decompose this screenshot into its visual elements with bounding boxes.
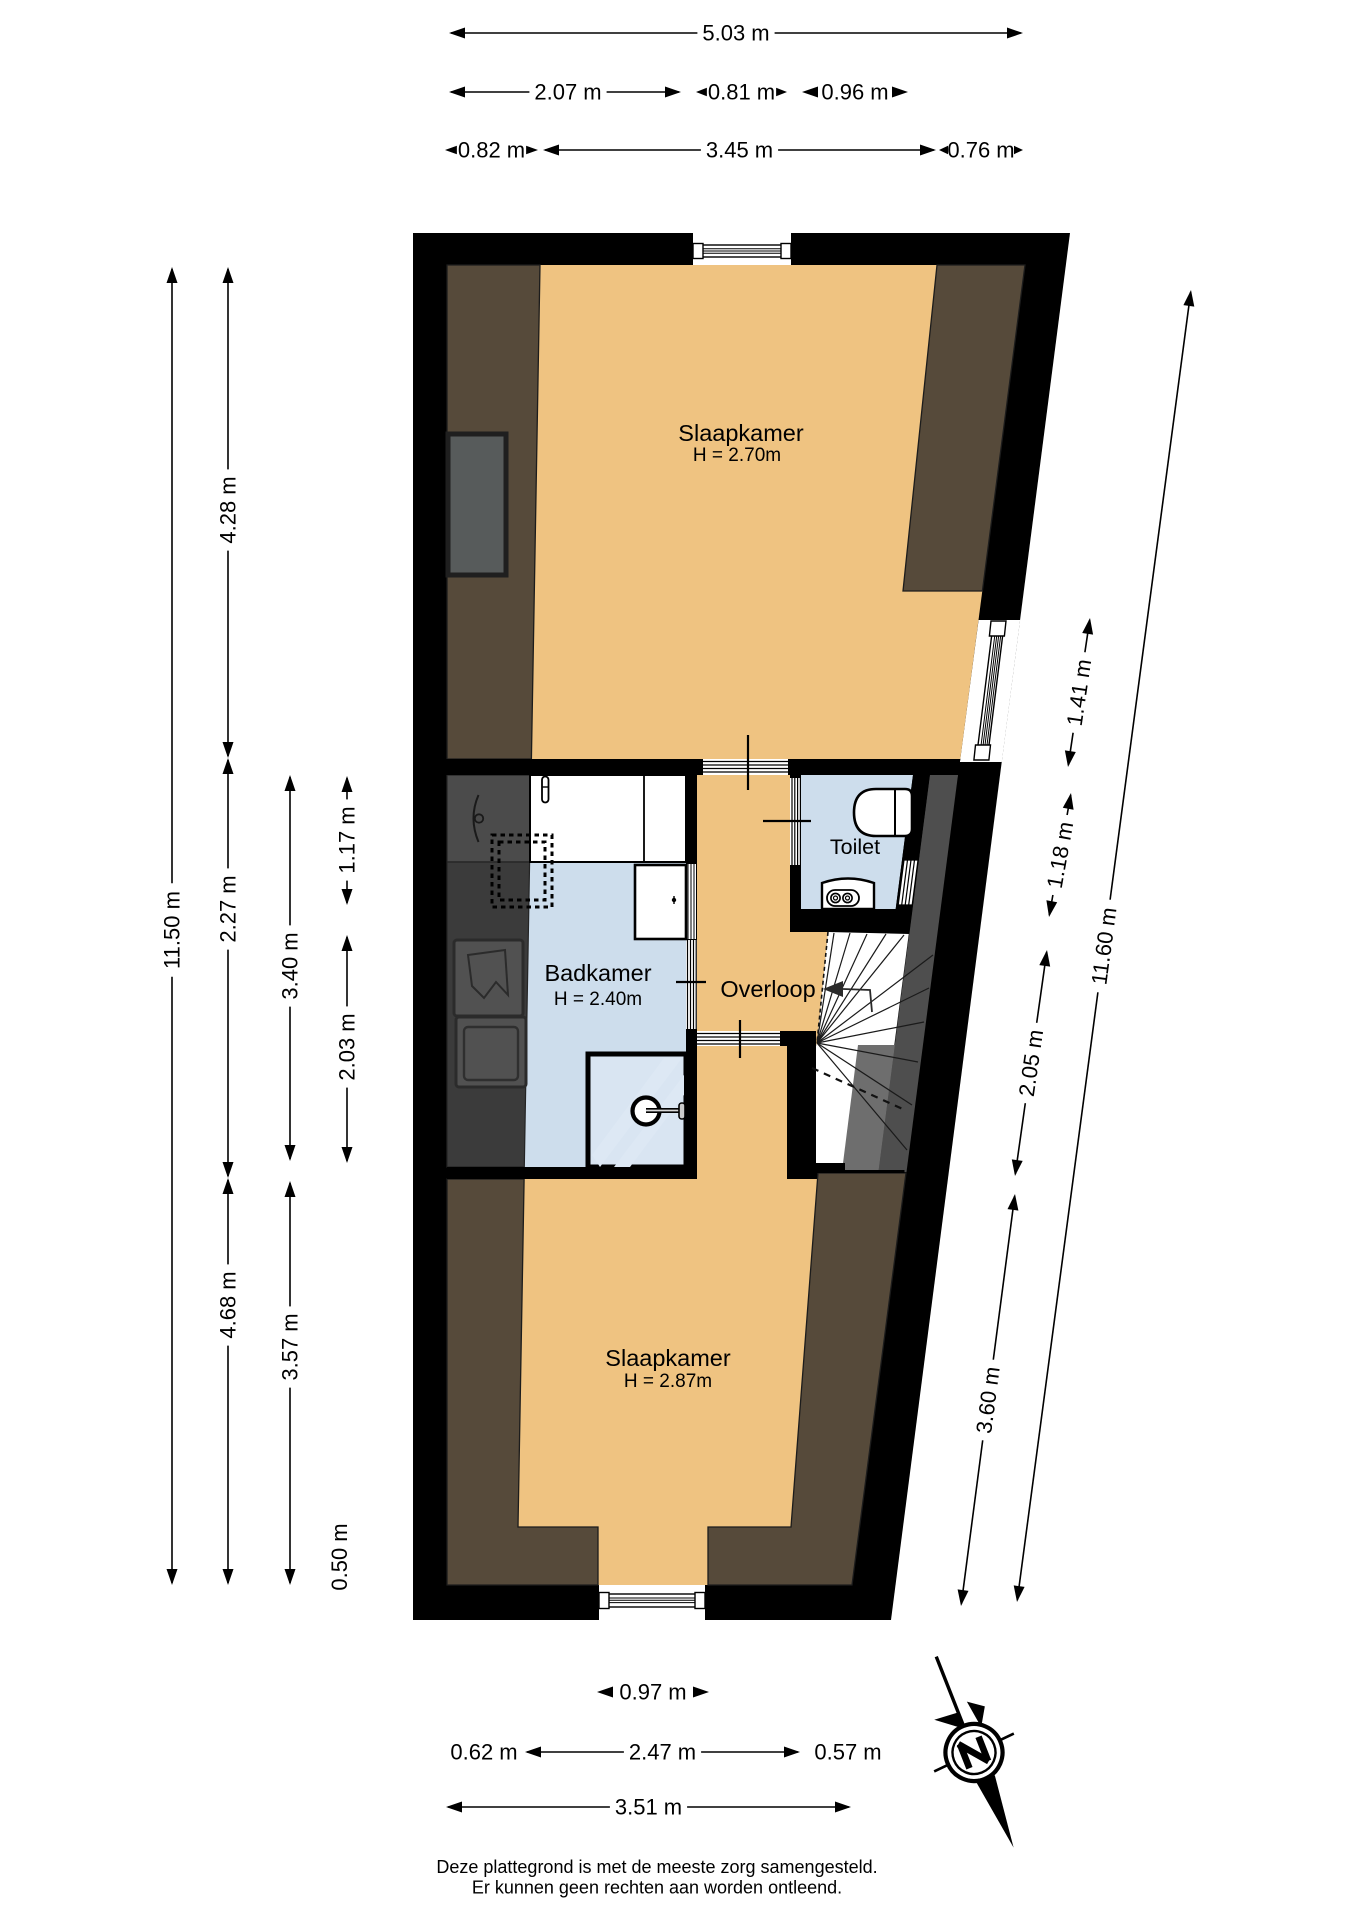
svg-text:1.17 m: 1.17 m (335, 806, 360, 873)
svg-text:3.57 m: 3.57 m (278, 1313, 303, 1380)
svg-text:Badkamer: Badkamer (544, 960, 651, 986)
svg-text:0.81 m: 0.81 m (708, 80, 775, 105)
svg-text:2.03 m: 2.03 m (335, 1013, 360, 1080)
svg-text:Deze plattegrond is met de mee: Deze plattegrond is met de meeste zorg s… (436, 1857, 877, 1877)
svg-text:0.82 m: 0.82 m (458, 138, 525, 163)
svg-text:3.51 m: 3.51 m (615, 1795, 682, 1820)
svg-text:2.07 m: 2.07 m (534, 80, 601, 105)
svg-text:0.62 m: 0.62 m (450, 1740, 517, 1765)
svg-text:0.76 m: 0.76 m (947, 138, 1014, 163)
svg-text:0.57 m: 0.57 m (814, 1740, 881, 1765)
svg-text:11.50 m: 11.50 m (160, 891, 185, 969)
svg-text:3.40 m: 3.40 m (278, 932, 303, 999)
svg-text:0.97 m: 0.97 m (619, 1680, 686, 1705)
svg-text:Overloop: Overloop (720, 976, 815, 1002)
svg-text:4.68 m: 4.68 m (216, 1271, 241, 1338)
svg-text:Slaapkamer: Slaapkamer (678, 420, 804, 446)
svg-text:2.47 m: 2.47 m (629, 1740, 696, 1765)
svg-text:H = 2.40m: H = 2.40m (554, 989, 642, 1010)
svg-text:Toilet: Toilet (830, 835, 880, 859)
svg-text:H = 2.70m: H = 2.70m (693, 445, 781, 466)
svg-text:3.45 m: 3.45 m (706, 138, 773, 163)
svg-text:2.27 m: 2.27 m (216, 875, 241, 942)
svg-text:0.50 m: 0.50 m (327, 1523, 352, 1590)
svg-text:H = 2.87m: H = 2.87m (624, 1371, 712, 1392)
svg-text:Slaapkamer: Slaapkamer (605, 1345, 731, 1371)
svg-text:5.03 m: 5.03 m (702, 21, 769, 46)
svg-text:Er kunnen geen rechten aan wor: Er kunnen geen rechten aan worden ontlee… (472, 1878, 842, 1898)
svg-text:0.96 m: 0.96 m (821, 80, 888, 105)
svg-text:4.28 m: 4.28 m (216, 476, 241, 543)
